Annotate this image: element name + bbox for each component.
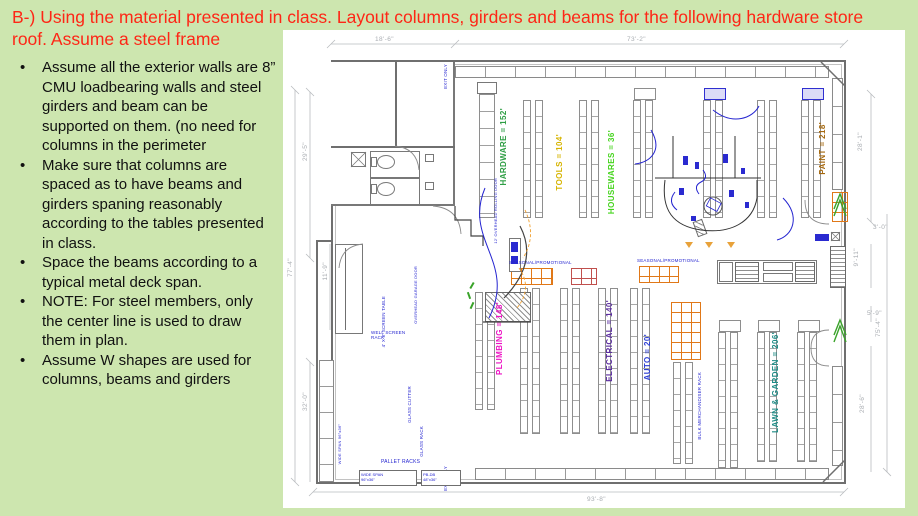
dept-label-auto: AUTO = 20' xyxy=(643,334,652,380)
checkout-arrow xyxy=(685,242,693,248)
dim-left-outer: 77'-4" xyxy=(287,258,294,277)
pbdb-box: PB-DB 48"x36" xyxy=(421,470,461,486)
side-room-line xyxy=(345,248,346,330)
shelving-rack xyxy=(718,332,740,468)
dept-label-electrical: ELECTRICAL = 140' xyxy=(605,300,614,382)
dim-right-door-lower: 5'-9" xyxy=(867,310,882,317)
bullet-item: Assume W shapes are used for columns, be… xyxy=(14,351,276,390)
bullet-item: Space the beams according to a typical m… xyxy=(14,253,276,292)
dim-right-upper: 28'-1" xyxy=(857,132,864,151)
bullet-item: Assume all the exterior walls are 8” CMU… xyxy=(14,58,276,156)
dim-right-lower: 28'-6" xyxy=(859,394,866,413)
glass-cutter-label: GLASS CUTTER xyxy=(407,386,412,423)
dept-label-tools: TOOLS = 104' xyxy=(555,134,564,191)
bullet-item: Make sure that columns are spaced as to … xyxy=(14,156,276,254)
seasonal-label: SEASONAL/PROMOTIONAL xyxy=(509,260,572,265)
front-wall-shelving-band xyxy=(455,66,829,78)
shelving-rack xyxy=(633,100,655,218)
left-wall-shelving xyxy=(319,360,334,482)
office-divider-wall xyxy=(395,62,397,146)
counter-hatch xyxy=(735,262,759,282)
dim-right-door-upper: 3'-0" xyxy=(873,224,888,231)
garage-door-note: OVERHEAD GARAGE DOOR xyxy=(413,266,418,324)
rear-wall-shelving-band xyxy=(475,468,829,480)
register-fixture xyxy=(695,162,699,169)
dim-left-inner: 11'-9" xyxy=(322,262,329,280)
bulk-rack-label: BULK MERCHANDISER RACK xyxy=(697,372,702,440)
floor-plan-sheet: HARDWARE = 152' TOOLS = 104' HOUSEWARES … xyxy=(283,30,905,508)
dim-right-outer: 75'-4" xyxy=(875,318,882,337)
toilet-fixture xyxy=(377,155,395,169)
kiosk-display xyxy=(511,242,518,252)
counter-segment xyxy=(763,273,793,282)
paint-pallet-grid xyxy=(832,192,848,222)
dim-right-mid-inner: 9'-11" xyxy=(853,248,860,266)
dept-label-plumbing: PLUMBING = 148' xyxy=(495,302,504,375)
bullet-item: NOTE: For steel members, only the center… xyxy=(14,292,276,351)
glass-rack-label: GLASS RACK xyxy=(419,426,424,457)
dept-label-paint: PAINT = 218' xyxy=(818,122,827,175)
dept-label-lawn-garden: LAWN & GARDEN = 206' xyxy=(771,332,780,433)
register-fixture xyxy=(745,202,749,208)
dim-bottom: 93'-8" xyxy=(587,496,606,503)
pallet-racks-label: PALLET RACKS xyxy=(381,460,420,465)
restroom-wall xyxy=(331,146,455,148)
register-fixture xyxy=(729,190,734,197)
entry-stair-hatch xyxy=(485,292,531,322)
sink-fixture xyxy=(425,154,434,162)
counter-segment xyxy=(763,262,793,271)
shelving-rack xyxy=(523,100,545,218)
register-fixture xyxy=(679,188,684,195)
counter-segment xyxy=(719,262,733,282)
register-fixture xyxy=(723,154,728,163)
well-screen-rack-label: WELL SCREEN RACK xyxy=(371,330,415,340)
checkout-arrow xyxy=(705,242,713,248)
slide-background: B-) Using the material presented in clas… xyxy=(0,0,918,516)
sink-fixture xyxy=(425,182,434,190)
toilet-fixture xyxy=(377,182,395,196)
checkout-arrow xyxy=(727,242,735,248)
shelving-rack xyxy=(579,100,601,218)
rack-endcap xyxy=(477,82,497,94)
toilet-tank xyxy=(371,157,377,167)
dept-label-hardware: HARDWARE = 152' xyxy=(499,108,508,185)
shelving-rack xyxy=(560,288,582,434)
dim-top-right: 73'-2" xyxy=(627,36,646,43)
right-entry-stairs xyxy=(830,246,846,288)
dim-top-left: 18'-6" xyxy=(375,36,394,43)
right-wall-shelving xyxy=(832,78,843,190)
dept-label-housewares: HOUSEWARES = 36' xyxy=(607,130,616,214)
dim-left-upper: 29'-5" xyxy=(302,142,309,161)
seasonal-label: SEASONAL/PROMOTIONAL xyxy=(637,258,700,263)
shelving-rack xyxy=(703,100,725,218)
wide-span-left-label: WIDE SPAN 96"x36" xyxy=(337,424,342,464)
exit-only-label: EXIT ONLY xyxy=(443,64,448,89)
overhead-door-note: 12' OVERHEAD ROLLING DOOR xyxy=(493,178,498,244)
toilet-tank xyxy=(371,184,377,194)
shelving-rack xyxy=(673,362,695,464)
side-room-fixture xyxy=(335,244,363,334)
paint-fixture-box xyxy=(831,232,840,241)
counter-hatch xyxy=(795,262,815,282)
seasonal-pallet-grid xyxy=(639,266,679,283)
shelving-rack xyxy=(797,332,819,462)
register-fixture xyxy=(741,168,745,174)
shaft-box xyxy=(351,152,366,167)
seasonal-pallet-grid xyxy=(571,268,597,285)
shelving-rack xyxy=(757,100,779,218)
register-fixture xyxy=(683,156,688,165)
dim-left-lower: 32'-0" xyxy=(302,392,309,411)
bullet-list: Assume all the exterior walls are 8” CMU… xyxy=(14,58,276,390)
wide-span-box: WIDE SPAN 96"x36" xyxy=(359,470,417,486)
paint-fixture xyxy=(815,234,829,241)
right-wall-shelving xyxy=(832,366,843,466)
auto-pallet-grid xyxy=(671,302,701,360)
